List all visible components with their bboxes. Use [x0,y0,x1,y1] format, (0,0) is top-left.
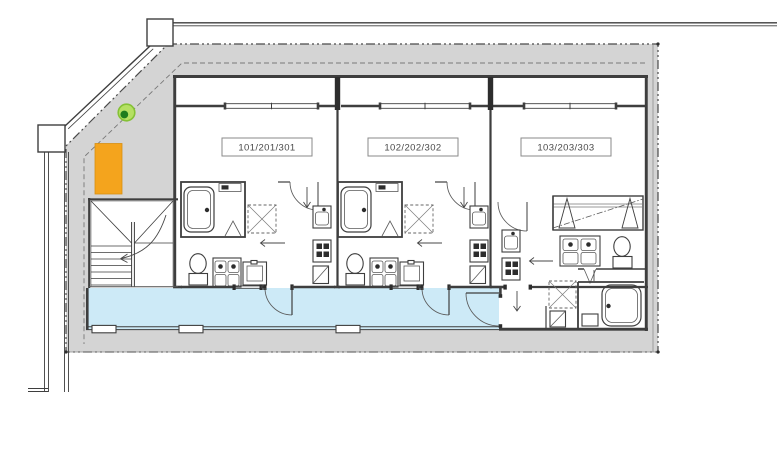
footing [179,325,203,332]
washbasin-icon [560,236,600,266]
unit-103-wing [499,288,648,331]
toilet-icon [614,237,630,257]
green-location-marker [118,104,135,121]
floor-plan-canvas: 101/201/301 102/202/302 103/203/303 [0,0,777,456]
floor-plan-drawing: 101/201/301 102/202/302 103/203/303 [0,0,777,456]
footing [92,325,116,332]
utility-pole-box [38,125,65,152]
orange-highlight [95,144,122,195]
footing [336,325,360,332]
road-edge-west [45,152,49,392]
utility-pole-box [147,19,173,46]
bath-counter [582,314,598,326]
stove-icon [502,258,520,280]
unit-102-label: 102/202/302 [384,143,441,154]
unit-101-label: 101/201/301 [238,143,295,154]
unit-103-label: 103/203/303 [537,143,594,154]
